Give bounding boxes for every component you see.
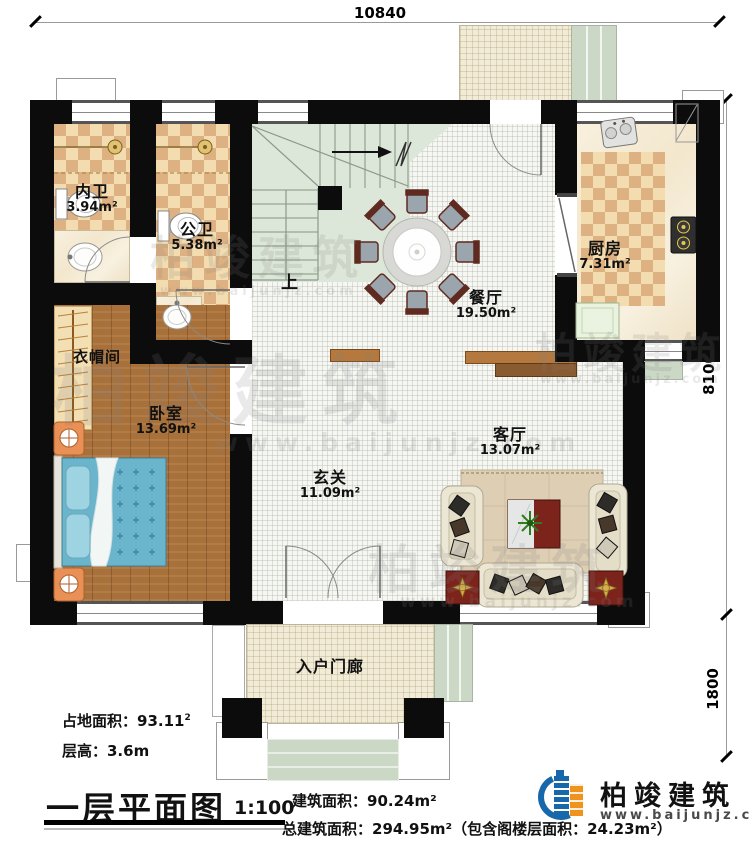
logo-building-orange	[570, 784, 583, 816]
title-underline-thin	[44, 828, 285, 830]
title-underline	[44, 820, 285, 825]
bed	[54, 422, 166, 601]
brand-url: www.baijunjz.com	[600, 808, 750, 823]
kitchen-fixtures	[576, 117, 696, 338]
room-label-foyer: 玄关 11.09m²	[290, 469, 370, 502]
land-area-text: 占地面积：93.112	[62, 710, 191, 731]
logo-building-blue	[554, 776, 569, 816]
floor-height-text: 层高：3.6m	[62, 740, 149, 761]
room-label-kitchen: 厨房 7.31m²	[570, 240, 640, 273]
room-label-bath1: 内卫 3.94m²	[52, 183, 132, 216]
room-label-closet: 衣帽间	[62, 349, 132, 366]
room-label-porch: 入户门廊	[290, 658, 370, 676]
room-label-bath2: 公卫 5.38m²	[157, 221, 237, 254]
room-label-bedroom: 卧室 13.69m²	[126, 405, 206, 438]
stairs-up-label: 上	[281, 268, 299, 293]
brand-logo-icon	[536, 766, 596, 828]
closet-hangers	[58, 310, 88, 428]
floor-plan-page: 10840 8100 1800	[0, 0, 750, 844]
building-area-text: 建筑面积：90.24m²	[292, 790, 437, 811]
living-room-set	[441, 470, 627, 607]
room-label-dining: 餐厅 19.50m²	[446, 289, 526, 322]
plan-scale: 1:100	[234, 797, 294, 819]
room-label-living: 客厅 13.07m²	[470, 426, 550, 459]
